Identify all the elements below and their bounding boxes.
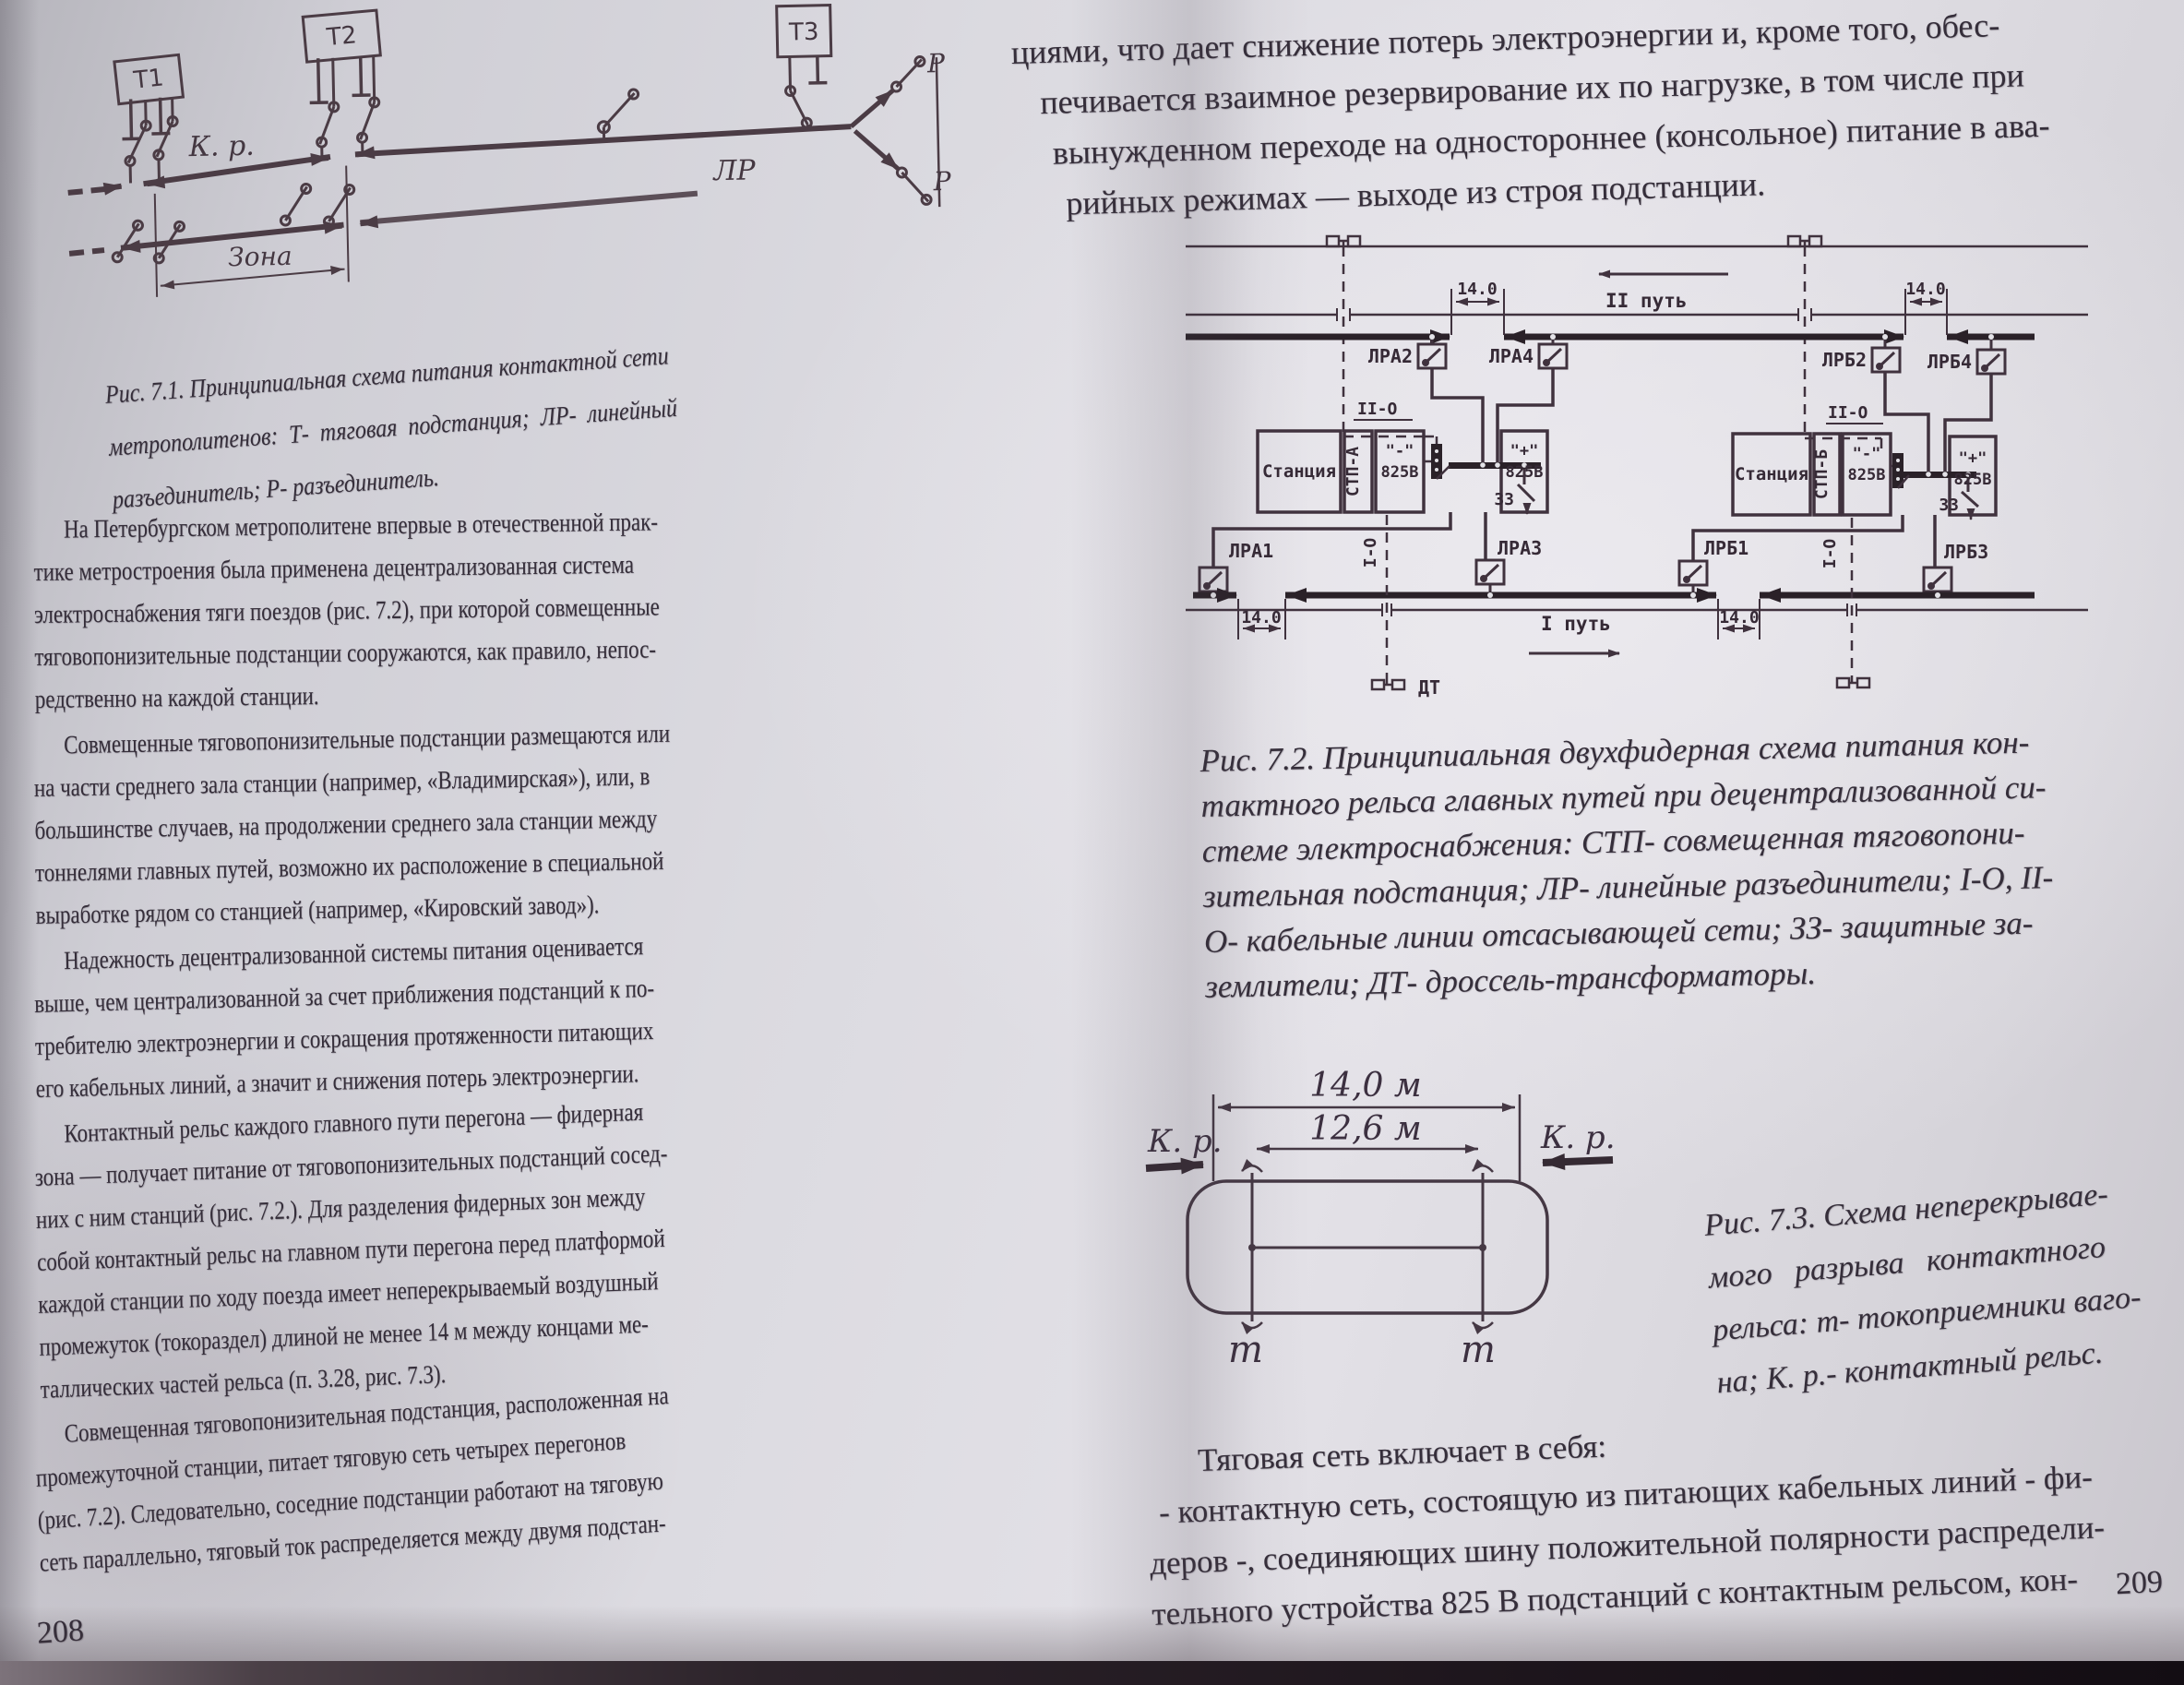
t1-label: Т1 [131,64,164,94]
left-edge-shadow [0,0,39,1685]
minus-label: "-" [1853,445,1881,463]
lra2-label: ЛРА2 [1368,345,1413,367]
choke-transformer-top-right [1788,236,1821,246]
zona-label: Зона [228,241,292,272]
figure-7-1-caption: Рис. 7.1. Принципиальная схема питания к… [103,329,683,527]
volts-label: 825В [1954,471,1992,489]
dim-label: 14.0 [1719,608,1759,627]
disconnector-lrb3 [1924,568,1951,595]
figure-7-1-drawing: Т1 Т2 Т3 К. р. ЛР Р Р Зона [48,0,959,320]
volts-label: 825В [1381,463,1419,482]
track2-label: II путь [1605,290,1688,312]
stp-b-label: СТП-Б [1812,449,1832,499]
lr-label: ЛР [711,154,757,187]
t3-label: Т3 [788,18,819,47]
paragraph: Совмещенные тяговопонизительные подстанц… [33,713,673,938]
plus-label: "+" [1510,442,1539,460]
kr-label: К. р. [187,130,255,164]
stp-a-label: СТП-А [1343,447,1363,496]
paragraph: Контактный рельс каждого главного пути п… [33,1091,677,1412]
right-top-paragraph: циями, что дает снижение потерь электроэ… [1010,0,2052,231]
plus-label: "+" [1959,449,1987,468]
r-label-upper: Р [926,48,947,78]
t2-label: Т2 [325,21,358,52]
lra4-label: ЛРА4 [1489,345,1534,367]
figure-7-2-drawing: II путь I путь 14.0 14.0 14.0 14.0 ЛРА2 … [1186,233,2184,706]
dim-label: 14.0 [1241,608,1281,627]
figure-7-3-drawing: 14,0 м 12,6 м К. р. К. р. m m [1144,1052,1624,1370]
disconnector-lrb2 [1872,337,1900,372]
inner-dim-label: 12,6 м [1309,1110,1421,1148]
left-page-body: На Петербургском метрополитене впервые в… [33,509,670,1585]
track1-running-rail [1186,603,2088,616]
disconnector-lra4 [1539,337,1567,368]
disconnector-lrb1 [1679,561,1707,595]
disconnector-lra2 [1418,337,1446,368]
disconnector-lrb4 [1977,337,2005,374]
bottom-shadow [0,1606,2184,1663]
lrb1-label: ЛРБ1 [1704,537,1748,559]
kr-label-right: К. р. [1540,1119,1616,1156]
dim-label: 14.0 [1457,280,1497,299]
paragraph: Надежность децентрализованной системы пи… [33,925,673,1111]
lrb3-label: ЛРБ3 [1944,541,1988,563]
fork-disconnectors [850,56,939,209]
paragraph: На Петербургском метрополитене впервые в… [33,501,672,722]
dt-label: ДТ [1418,676,1440,699]
lra3-label: ЛРА3 [1498,537,1542,559]
station-a-label: Станция [1262,461,1336,482]
zone-dimension [154,166,349,297]
contact-rail-arrow-left [1146,1165,1203,1168]
body-line: тяговопонизительные подстанции сооружают… [34,628,671,679]
book-edge-bar [0,1661,2184,1685]
lra1-label: ЛРА1 [1229,540,1273,562]
zz-label: ЗЗ [1939,496,1959,515]
feeder1-label: I-О [1820,539,1840,569]
outer-dim-label: 14,0 м [1309,1067,1421,1105]
disconnector-lra1 [1199,568,1227,595]
volts-label: 825В [1848,466,1886,484]
collector-label-right: m [1461,1329,1496,1371]
lrb2-label: ЛРБ2 [1822,349,1867,371]
dim-label: 14.0 [1905,280,1945,299]
second-rail-line [68,194,698,254]
choke-transformer-top-left [1327,236,1360,246]
book-scan: Т1 Т2 Т3 К. р. ЛР Р Р Зона Рис. 7.1. При… [0,0,2184,1685]
right-page-number: 209 [2115,1565,2164,1603]
figure-7-2-caption: Рис. 7.2. Принципиальная двухфидерная сх… [1199,719,2056,1010]
station-b-label: Станция [1735,464,1808,484]
feeder1-label: I-О [1361,538,1380,568]
zz-label: ЗЗ [1494,490,1514,509]
choke-transformer-bottom-right [1837,676,1869,687]
choke-transformer-bottom-left [1372,678,1404,689]
lrb4-label: ЛРБ4 [1927,351,1972,373]
collector-label-left: m [1228,1329,1263,1371]
feeder2-label: II-О [1357,400,1398,419]
line-disconnector-switch [598,90,639,140]
minus-label: "-" [1386,442,1414,460]
contact-rail-arrow-right [1543,1160,1613,1163]
kr-label-left: К. р. [1147,1123,1223,1160]
volts-label: 825В [1506,463,1544,482]
track1-label: I путь [1541,613,1611,635]
figure-7-3-caption: Рис. 7.3. Схема неперекрывае- мого разры… [1702,1165,2147,1409]
feeder2-label: II-О [1828,403,1868,423]
disconnector-lra3 [1476,560,1504,595]
r-label-lower: Р [932,166,952,197]
